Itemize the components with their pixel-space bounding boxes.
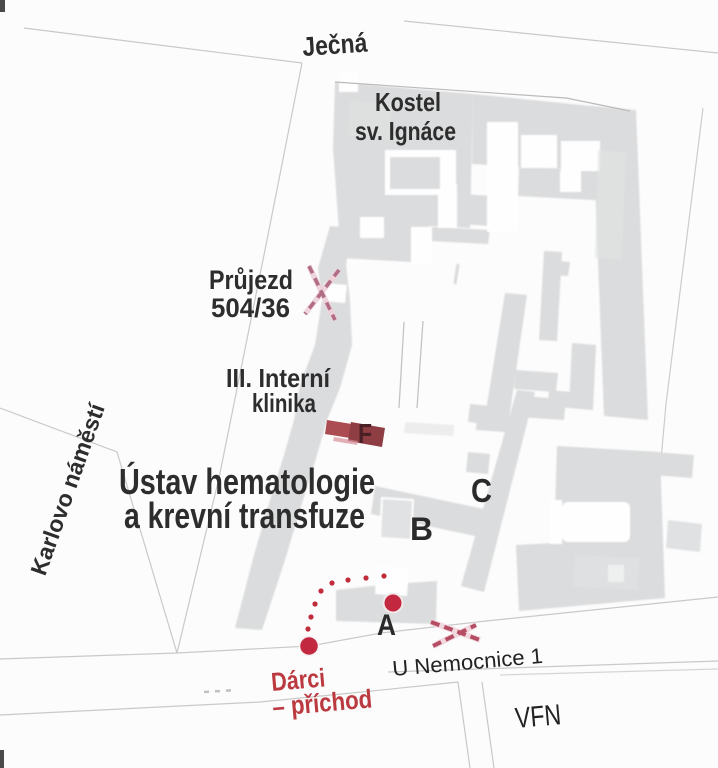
svg-text:A: A bbox=[377, 609, 396, 642]
svg-text:B: B bbox=[410, 511, 433, 547]
svg-text:a krevní transfuze: a krevní transfuze bbox=[124, 495, 365, 536]
svg-text:F: F bbox=[358, 418, 372, 449]
svg-text:Průjezd: Průjezd bbox=[209, 265, 293, 295]
svg-text:504/36: 504/36 bbox=[211, 293, 290, 323]
svg-text:VFN: VFN bbox=[514, 699, 563, 735]
svg-text:sv. Ignáce: sv. Ignáce bbox=[355, 116, 456, 146]
svg-text:klinika: klinika bbox=[252, 388, 316, 418]
svg-text:Ječná: Ječná bbox=[301, 27, 369, 62]
svg-text:C: C bbox=[471, 472, 492, 509]
svg-text:Kostel: Kostel bbox=[375, 87, 441, 117]
